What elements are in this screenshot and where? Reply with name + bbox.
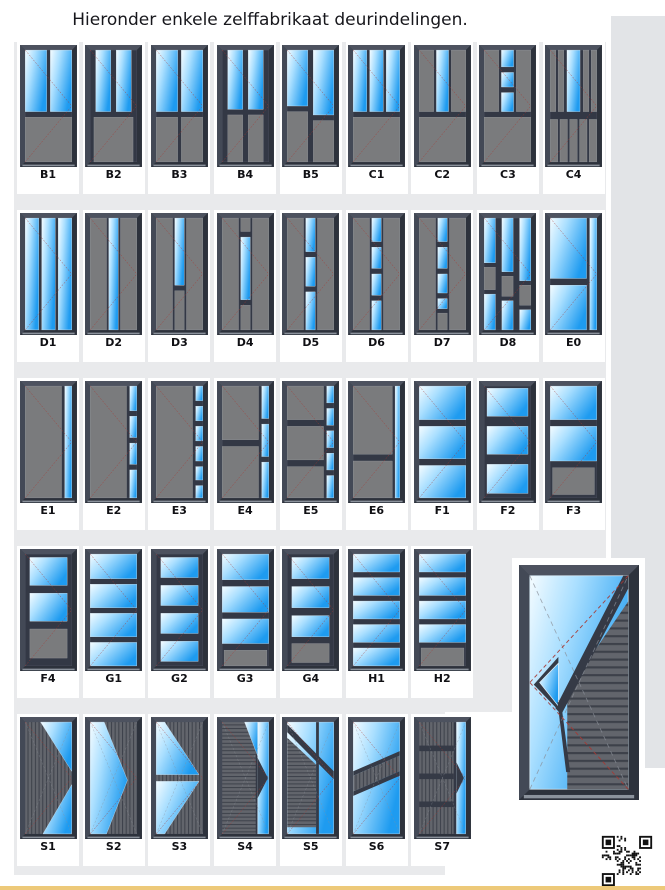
door-preview bbox=[348, 381, 405, 503]
door-card-D3[interactable]: D3 bbox=[148, 210, 210, 362]
door-card-large[interactable] bbox=[512, 558, 645, 806]
door-card-S4[interactable]: S4 bbox=[214, 714, 276, 866]
door-label: F3 bbox=[566, 505, 581, 517]
door-card-B4[interactable]: B4 bbox=[214, 42, 276, 194]
door-label: B5 bbox=[303, 169, 319, 181]
door-preview bbox=[85, 45, 142, 167]
door-label: E4 bbox=[238, 505, 253, 517]
door-label: S1 bbox=[40, 841, 56, 853]
door-label: F1 bbox=[435, 505, 450, 517]
door-card-G4[interactable]: G4 bbox=[280, 546, 342, 698]
door-preview bbox=[217, 45, 274, 167]
door-card-F2[interactable]: F2 bbox=[477, 378, 539, 530]
door-preview bbox=[85, 213, 142, 335]
door-preview bbox=[85, 717, 142, 839]
door-label: E5 bbox=[303, 505, 318, 517]
bottom-accent-line bbox=[0, 886, 665, 890]
door-preview bbox=[348, 45, 405, 167]
door-card-B2[interactable]: B2 bbox=[83, 42, 145, 194]
door-preview bbox=[414, 549, 471, 671]
door-preview bbox=[348, 549, 405, 671]
door-label: D8 bbox=[499, 337, 516, 349]
door-preview bbox=[282, 213, 339, 335]
door-label: D2 bbox=[105, 337, 122, 349]
door-label: G1 bbox=[105, 673, 122, 685]
door-label: S2 bbox=[106, 841, 122, 853]
door-preview bbox=[348, 213, 405, 335]
door-label: B4 bbox=[237, 169, 253, 181]
door-card-E5[interactable]: E5 bbox=[280, 378, 342, 530]
door-preview bbox=[479, 45, 536, 167]
door-label: E1 bbox=[40, 505, 55, 517]
door-card-B1[interactable]: B1 bbox=[17, 42, 79, 194]
door-label: E2 bbox=[106, 505, 121, 517]
door-label: D6 bbox=[368, 337, 385, 349]
door-preview bbox=[151, 213, 208, 335]
door-card-S2[interactable]: S2 bbox=[83, 714, 145, 866]
door-preview bbox=[20, 549, 77, 671]
door-preview bbox=[217, 549, 274, 671]
door-preview bbox=[217, 213, 274, 335]
door-preview bbox=[479, 381, 536, 503]
door-card-S3[interactable]: S3 bbox=[148, 714, 210, 866]
door-label: C2 bbox=[434, 169, 450, 181]
door-label: F4 bbox=[40, 673, 55, 685]
door-card-E4[interactable]: E4 bbox=[214, 378, 276, 530]
door-label: D4 bbox=[237, 337, 254, 349]
door-preview bbox=[217, 717, 274, 839]
door-preview bbox=[414, 45, 471, 167]
door-preview bbox=[85, 381, 142, 503]
door-card-D6[interactable]: D6 bbox=[346, 210, 408, 362]
door-label: C1 bbox=[369, 169, 385, 181]
door-preview bbox=[282, 717, 339, 839]
door-card-E0[interactable]: E0 bbox=[543, 210, 605, 362]
door-card-B5[interactable]: B5 bbox=[280, 42, 342, 194]
door-card-S1[interactable]: S1 bbox=[17, 714, 79, 866]
door-preview bbox=[545, 381, 602, 503]
door-preview bbox=[151, 45, 208, 167]
door-label: B3 bbox=[171, 169, 187, 181]
door-card-D2[interactable]: D2 bbox=[83, 210, 145, 362]
door-label: D5 bbox=[302, 337, 319, 349]
door-card-H2[interactable]: H2 bbox=[411, 546, 473, 698]
door-label: G3 bbox=[237, 673, 254, 685]
door-card-F1[interactable]: F1 bbox=[411, 378, 473, 530]
door-card-C3[interactable]: C3 bbox=[477, 42, 539, 194]
door-preview bbox=[348, 717, 405, 839]
door-preview bbox=[282, 45, 339, 167]
door-card-F3[interactable]: F3 bbox=[543, 378, 605, 530]
door-preview bbox=[20, 717, 77, 839]
door-preview bbox=[151, 381, 208, 503]
door-card-C1[interactable]: C1 bbox=[346, 42, 408, 194]
door-card-C4[interactable]: C4 bbox=[543, 42, 605, 194]
door-card-F4[interactable]: F4 bbox=[17, 546, 79, 698]
door-card-D1[interactable]: D1 bbox=[17, 210, 79, 362]
door-preview bbox=[479, 213, 536, 335]
door-card-B3[interactable]: B3 bbox=[148, 42, 210, 194]
door-label: B1 bbox=[40, 169, 56, 181]
door-card-G2[interactable]: G2 bbox=[148, 546, 210, 698]
door-preview bbox=[282, 381, 339, 503]
door-label: C4 bbox=[566, 169, 582, 181]
door-card-E3[interactable]: E3 bbox=[148, 378, 210, 530]
door-card-D8[interactable]: D8 bbox=[477, 210, 539, 362]
door-card-S7[interactable]: S7 bbox=[411, 714, 473, 866]
door-preview bbox=[545, 45, 602, 167]
door-label: S7 bbox=[434, 841, 450, 853]
door-preview bbox=[414, 213, 471, 335]
door-card-C2[interactable]: C2 bbox=[411, 42, 473, 194]
door-card-E2[interactable]: E2 bbox=[83, 378, 145, 530]
door-preview bbox=[20, 381, 77, 503]
door-preview bbox=[151, 717, 208, 839]
door-preview bbox=[282, 549, 339, 671]
door-card-G1[interactable]: G1 bbox=[83, 546, 145, 698]
door-label: D3 bbox=[171, 337, 188, 349]
door-preview bbox=[414, 717, 471, 839]
door-card-H1[interactable]: H1 bbox=[346, 546, 408, 698]
catalog-page: Hieronder enkele zelffabrikaat deurindel… bbox=[0, 0, 665, 890]
door-preview bbox=[85, 549, 142, 671]
door-preview bbox=[20, 45, 77, 167]
door-label: G4 bbox=[302, 673, 319, 685]
door-label: H2 bbox=[434, 673, 451, 685]
door-label: H1 bbox=[368, 673, 385, 685]
door-preview bbox=[20, 213, 77, 335]
door-preview bbox=[545, 213, 602, 335]
door-preview bbox=[414, 381, 471, 503]
door-card-S5[interactable]: S5 bbox=[280, 714, 342, 866]
door-label: E0 bbox=[566, 337, 581, 349]
door-label: S6 bbox=[369, 841, 385, 853]
door-label: S4 bbox=[237, 841, 253, 853]
page-title: Hieronder enkele zelffabrikaat deurindel… bbox=[0, 10, 540, 30]
door-card-E6[interactable]: E6 bbox=[346, 378, 408, 530]
door-preview bbox=[151, 549, 208, 671]
door-card-G3[interactable]: G3 bbox=[214, 546, 276, 698]
door-label: S3 bbox=[172, 841, 188, 853]
door-card-E1[interactable]: E1 bbox=[17, 378, 79, 530]
door-preview bbox=[217, 381, 274, 503]
door-label: B2 bbox=[106, 169, 122, 181]
door-label: F2 bbox=[500, 505, 515, 517]
door-label: D7 bbox=[434, 337, 451, 349]
door-card-D5[interactable]: D5 bbox=[280, 210, 342, 362]
door-card-S6[interactable]: S6 bbox=[346, 714, 408, 866]
door-label: D1 bbox=[40, 337, 57, 349]
qr-code-icon bbox=[599, 834, 655, 888]
door-label: G2 bbox=[171, 673, 188, 685]
door-label: E6 bbox=[369, 505, 384, 517]
door-label: E3 bbox=[172, 505, 187, 517]
door-label: C3 bbox=[500, 169, 516, 181]
door-label: S5 bbox=[303, 841, 319, 853]
door-card-D4[interactable]: D4 bbox=[214, 210, 276, 362]
door-card-D7[interactable]: D7 bbox=[411, 210, 473, 362]
large-door-preview bbox=[519, 565, 639, 800]
